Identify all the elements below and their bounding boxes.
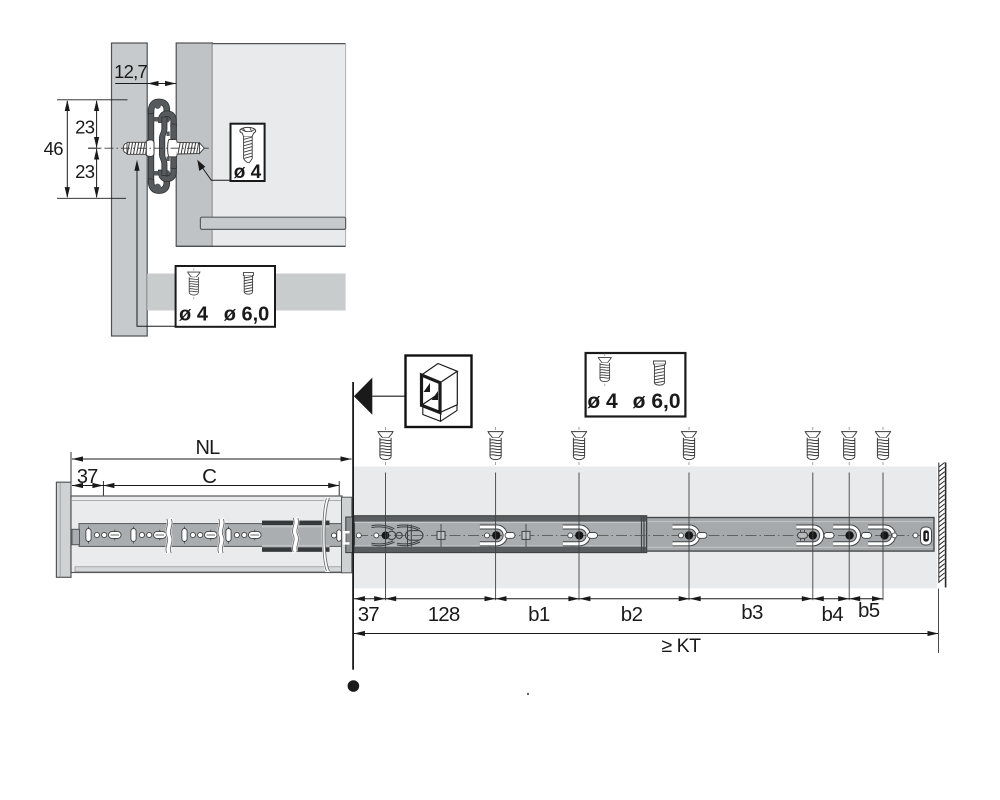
svg-text:ø 4: ø 4 — [234, 162, 262, 183]
svg-text:C: C — [202, 465, 217, 488]
svg-text:ø 6,0: ø 6,0 — [224, 303, 270, 325]
svg-text:≥ KT: ≥ KT — [661, 635, 701, 657]
svg-text:b3: b3 — [741, 601, 763, 624]
svg-text:NL: NL — [196, 437, 221, 459]
svg-text:23: 23 — [75, 161, 95, 182]
svg-text:b5: b5 — [858, 599, 880, 622]
svg-text:ø 6,0: ø 6,0 — [633, 390, 681, 413]
svg-text:b1: b1 — [528, 603, 550, 626]
svg-text:12,7: 12,7 — [114, 61, 147, 82]
svg-text:ø 4: ø 4 — [179, 303, 209, 325]
svg-text:128: 128 — [428, 603, 460, 626]
svg-text:37: 37 — [77, 466, 98, 488]
svg-text:23: 23 — [75, 117, 95, 138]
svg-text:b2: b2 — [621, 603, 643, 626]
svg-text:ø 4: ø 4 — [587, 390, 618, 413]
svg-text:b4: b4 — [821, 603, 843, 626]
svg-text:37: 37 — [358, 603, 380, 626]
svg-text:46: 46 — [44, 138, 64, 159]
